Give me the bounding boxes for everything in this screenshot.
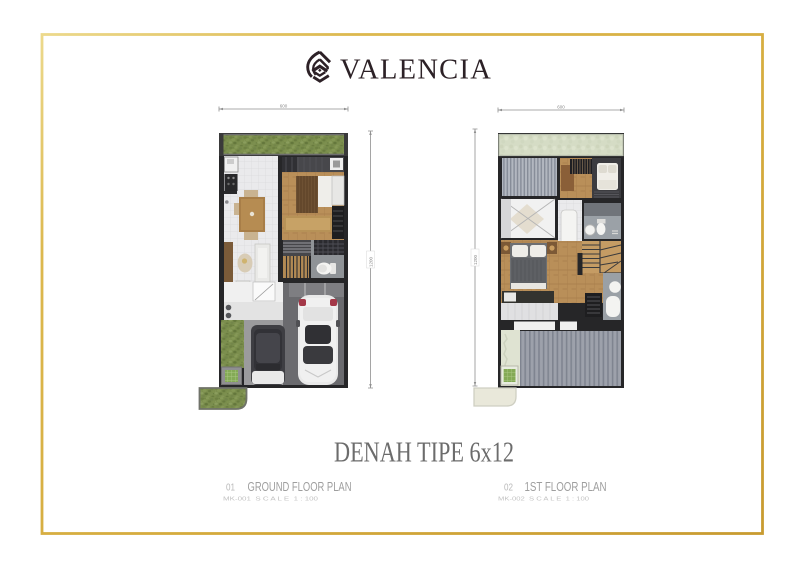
svg-text:02: 02 [504, 483, 513, 494]
svg-text:600: 600 [280, 104, 288, 109]
svg-text:600: 600 [557, 105, 565, 110]
svg-text:GROUND FLOOR PLAN: GROUND FLOOR PLAN [248, 479, 352, 494]
svg-text:VALENCIA: VALENCIA [340, 55, 493, 86]
svg-text:1200: 1200 [369, 256, 374, 267]
svg-text:01: 01 [226, 483, 235, 494]
svg-text:MK-001 S C A L E 1 : 100: MK-001 S C A L E 1 : 100 [223, 497, 318, 503]
svg-text:1ST FLOOR PLAN: 1ST FLOOR PLAN [525, 479, 607, 494]
svg-text:MK-002 S C A L E 1 : 100: MK-002 S C A L E 1 : 100 [498, 497, 589, 503]
svg-text:DENAH TIPE 6x12: DENAH TIPE 6x12 [334, 438, 514, 469]
svg-text:1200: 1200 [473, 254, 478, 265]
